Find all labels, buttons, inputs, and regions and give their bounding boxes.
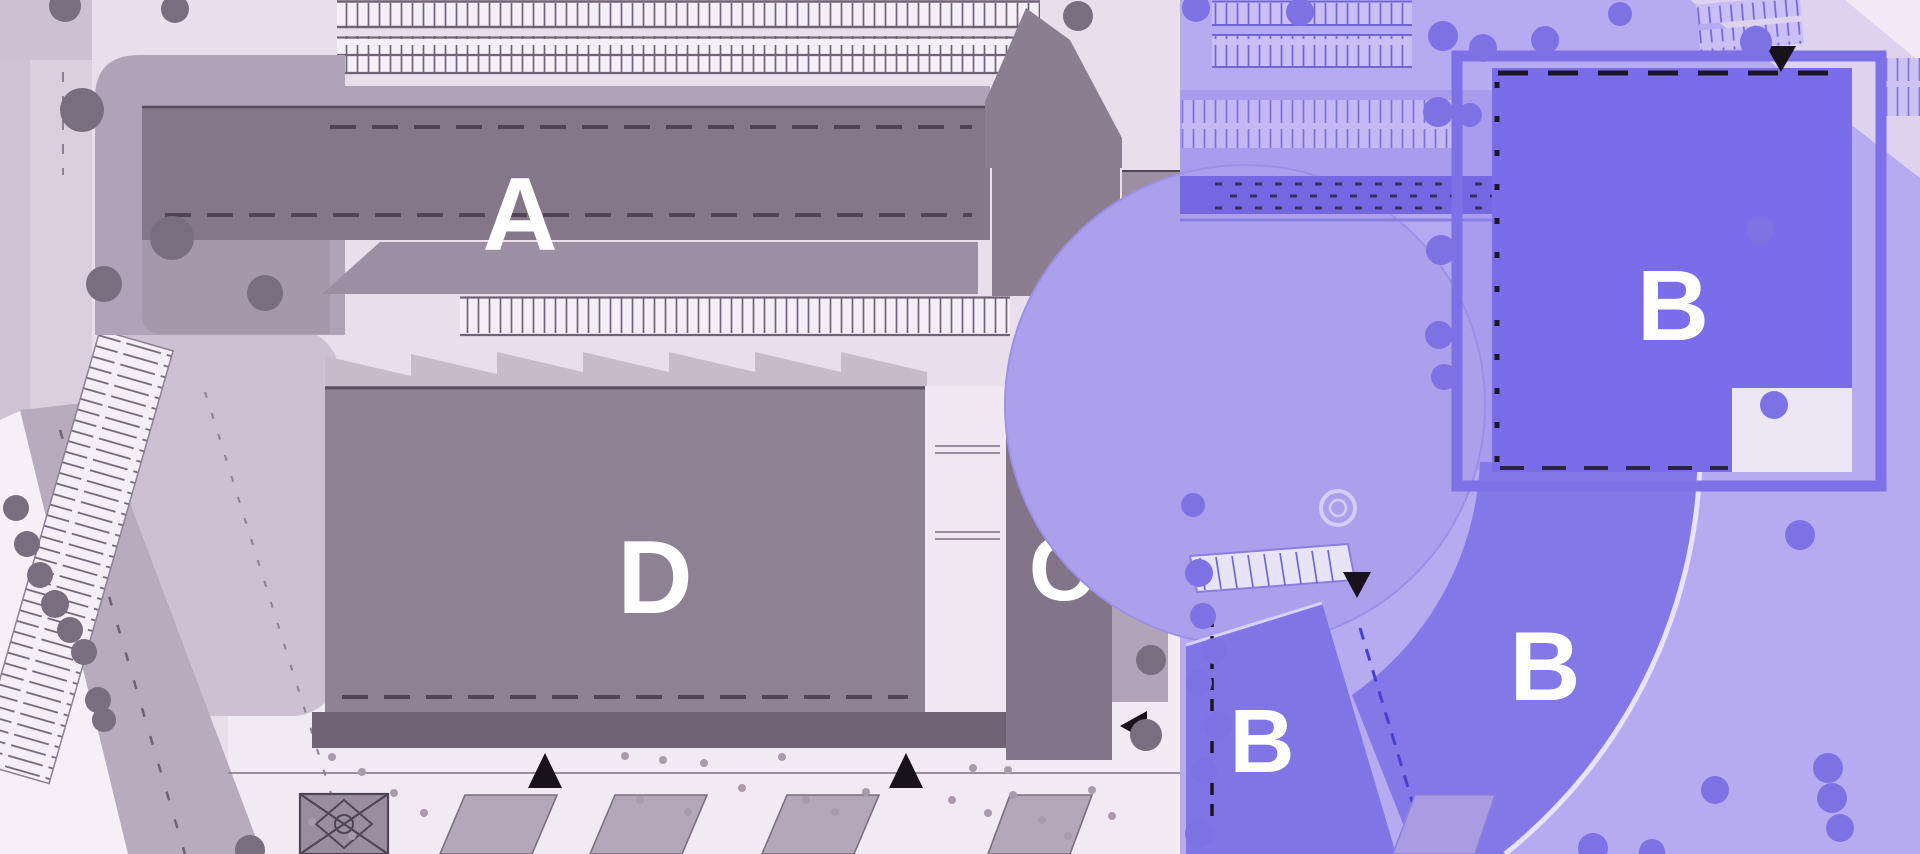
walkway-surface	[925, 386, 1006, 712]
parking-row-1	[337, 0, 1040, 28]
building-a-lower-slab	[322, 242, 978, 294]
tree-icon	[71, 639, 97, 665]
tree-icon	[1785, 520, 1815, 550]
tree-icon	[60, 88, 104, 132]
tree-icon	[1185, 559, 1213, 587]
site-plan: A D	[0, 0, 1920, 854]
bridge-parking-hatch	[1182, 100, 1458, 148]
tree-icon	[57, 617, 83, 643]
building-b-north: B	[1457, 46, 1881, 486]
building-b-arc-label: B	[1510, 611, 1581, 721]
tree-icon	[1701, 776, 1729, 804]
tree-icon	[1469, 34, 1497, 62]
tree-icon	[86, 266, 122, 302]
tree-icon	[1813, 753, 1843, 783]
tree-icon	[1426, 235, 1456, 265]
blue-parking-east	[1886, 58, 1920, 116]
site-plan-svg: A D	[0, 0, 1920, 854]
tree-icon	[1746, 216, 1774, 244]
tree-icon	[150, 216, 194, 260]
building-d: D	[312, 352, 1012, 748]
tree-icon	[1181, 493, 1205, 517]
building-b-north-label: B	[1637, 250, 1709, 362]
tree-icon	[1130, 719, 1162, 751]
tree-icon	[14, 531, 40, 557]
tree-icon	[41, 590, 69, 618]
tree-icon	[1423, 97, 1453, 127]
tree-icon	[1191, 758, 1217, 784]
tree-icon	[1817, 783, 1847, 813]
tree-icon	[1425, 321, 1453, 349]
tree-icon	[1428, 21, 1458, 51]
tree-icon	[1201, 638, 1227, 664]
tree-icon	[1186, 670, 1212, 696]
building-b-notch	[1732, 388, 1852, 472]
tree-icon	[1136, 645, 1166, 675]
tree-icon	[1458, 103, 1482, 127]
blue-parking-row-2	[1212, 34, 1412, 68]
walkway-d-c	[925, 386, 1006, 712]
tree-icon	[3, 495, 29, 521]
parking-row-3	[460, 296, 1010, 336]
tree-icon	[1826, 814, 1854, 842]
tree-icon	[27, 562, 53, 588]
tree-icon	[1531, 26, 1559, 54]
tree-icon	[1740, 26, 1772, 58]
building-d-label: D	[617, 520, 692, 636]
tree-icon	[1431, 364, 1457, 390]
building-d-base-band	[312, 712, 1012, 748]
tree-icon	[1063, 1, 1093, 31]
left-road	[30, 0, 92, 425]
tree-icon	[1185, 820, 1213, 848]
building-b-south-label: B	[1230, 692, 1295, 792]
tree-icon	[1204, 712, 1232, 740]
tree-icon	[1190, 603, 1216, 629]
tree-icon	[1608, 2, 1632, 26]
left-verge	[0, 0, 30, 430]
tree-icon	[247, 275, 283, 311]
tree-icon	[1760, 391, 1788, 419]
tree-icon	[92, 708, 116, 732]
building-a-label: A	[482, 157, 557, 273]
